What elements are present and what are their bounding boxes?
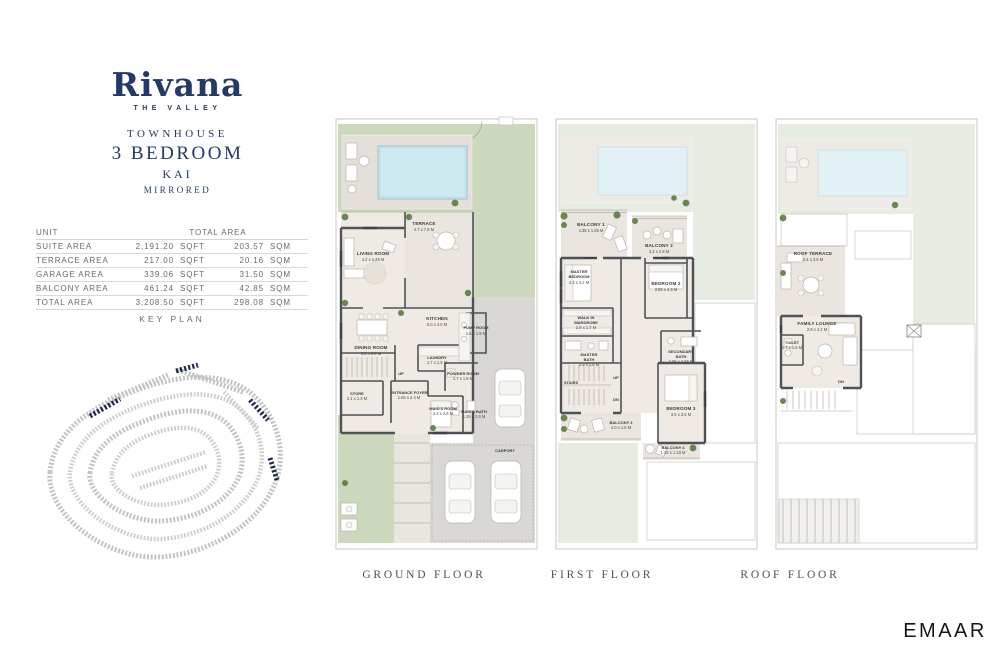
svg-text:4.2 x 4.25 M: 4.2 x 4.25 M <box>362 257 385 262</box>
svg-text:2.9 x 1.9 M: 2.9 x 1.9 M <box>579 362 600 367</box>
svg-text:UP: UP <box>613 375 619 380</box>
svg-text:4.0 x 1.5 M: 4.0 x 1.5 M <box>611 425 632 430</box>
svg-text:1.29 x 1.18 M: 1.29 x 1.18 M <box>661 450 686 455</box>
roof-void <box>855 231 911 259</box>
dining-table <box>357 320 387 335</box>
svg-text:2.2 x 2.6 M: 2.2 x 2.6 M <box>433 411 454 416</box>
unit-variant: MIRRORED <box>55 185 300 195</box>
caption-roof-floor: ROOF FLOOR <box>740 569 839 581</box>
unit-model: KAI <box>55 167 300 182</box>
garden-below <box>558 443 638 543</box>
toilet-icon <box>785 350 791 356</box>
pool-water <box>381 149 464 196</box>
sofa <box>781 263 791 289</box>
carport-roof <box>647 462 755 540</box>
svg-text:4.7 x 7.8 M: 4.7 x 7.8 M <box>414 227 435 232</box>
ground-floor-plan: CARPORT <box>333 113 540 555</box>
svg-text:4.4 x 3.9 M: 4.4 x 3.9 M <box>803 257 824 262</box>
svg-text:LIVING ROOM: LIVING ROOM <box>357 251 390 256</box>
svg-text:3.5 x 3.6 M: 3.5 x 3.6 M <box>671 412 692 417</box>
roof-below <box>781 214 847 246</box>
site-street-loops <box>50 370 281 557</box>
svg-text:1.7 x 1.9 M: 1.7 x 1.9 M <box>453 376 474 381</box>
first-floor-plan: BALCONY 1 4.35 x 1.85 M BALCONY 2 3.2 x … <box>553 113 760 555</box>
terrace-table <box>803 277 819 293</box>
svg-text:1.5 x 1.9 M: 1.5 x 1.9 M <box>466 331 487 336</box>
svg-text:FAMILY LOUNGE: FAMILY LOUNGE <box>797 321 836 326</box>
lounge-chair <box>346 143 357 159</box>
svg-text:4.35 x 1.85 M: 4.35 x 1.85 M <box>579 228 604 233</box>
roof-of-garden <box>693 212 755 300</box>
balcony-chair <box>646 445 655 454</box>
svg-text:1.7 x 1.6 M: 1.7 x 1.6 M <box>782 345 803 350</box>
pool-below <box>818 150 907 196</box>
rivana-logo-subtitle: THE VALLEY <box>55 105 300 112</box>
sofa <box>843 337 857 365</box>
pergola-slats <box>779 499 859 543</box>
svg-text:5.0 x 3.0 M: 5.0 x 3.0 M <box>427 322 448 327</box>
emaar-logo: EMAAR <box>903 620 987 643</box>
lounge-chair <box>786 147 797 162</box>
svg-text:STAIRS: STAIRS <box>564 380 579 385</box>
svg-text:KITCHEN: KITCHEN <box>426 316 448 321</box>
roof-below <box>913 324 975 434</box>
side-table <box>359 156 369 166</box>
rug <box>364 262 386 284</box>
rivana-logo: Rivana <box>55 68 300 102</box>
unit-type: TOWNHOUSE <box>55 128 300 140</box>
car-icon <box>445 461 475 523</box>
brand-block: Rivana THE VALLEY <box>55 68 300 112</box>
car-icon <box>495 369 525 427</box>
car-icon <box>491 461 521 523</box>
coffee-table <box>818 344 832 358</box>
svg-text:PUMP ROOM: PUMP ROOM <box>463 325 489 330</box>
toilet-icon <box>588 343 594 349</box>
svg-text:1.25 x 2.6 M: 1.25 x 2.6 M <box>463 414 486 419</box>
terrace-table <box>437 232 455 250</box>
svg-text:BALCONY 1: BALCONY 1 <box>577 222 605 227</box>
lounge-chair <box>346 165 357 181</box>
room-label: CARPORT <box>495 448 515 453</box>
svg-text:ROOF TERRACE: ROOF TERRACE <box>794 251 833 256</box>
svg-text:1.65 x 2.4 M: 1.65 x 2.4 M <box>398 395 421 400</box>
svg-text:2.9 x 4.2 M: 2.9 x 4.2 M <box>807 327 828 332</box>
key-plan-title: KEY PLAN <box>36 314 308 324</box>
svg-text:2.05 x 2.85 M: 2.05 x 2.85 M <box>669 359 694 364</box>
area-table: UNIT TOTAL AREA SUITE AREA 2,191.20 SQFT… <box>36 226 308 310</box>
svg-text:2.9 x 1.7 M: 2.9 x 1.7 M <box>576 325 597 330</box>
table-row: BALCONY AREA 461.24 SQFT 42.85 SQM <box>36 282 308 296</box>
svg-text:TERRACE: TERRACE <box>412 221 435 226</box>
table-row: TERRACE AREA 217.00 SQFT 20.16 SQM <box>36 254 308 268</box>
meter-box <box>499 117 513 125</box>
sofa <box>344 269 364 278</box>
svg-text:BEDROOM 2: BEDROOM 2 <box>651 281 680 286</box>
table-row: SUITE AREA 2,191.20 SQFT 203.57 SQM <box>36 240 308 254</box>
svg-text:BEDROOM: BEDROOM <box>569 274 591 279</box>
bathtub-icon <box>565 341 581 350</box>
caption-ground-floor: GROUND FLOOR <box>362 569 485 581</box>
svg-text:3.3 x 2.8 M: 3.3 x 2.8 M <box>361 351 382 356</box>
svg-text:UP: UP <box>398 371 404 376</box>
col-total-area: TOTAL AREA <box>128 228 308 237</box>
unit-title: TOWNHOUSE 3 BEDROOM KAI MIRRORED <box>55 128 300 195</box>
bathtub-icon <box>681 337 697 346</box>
lounge-chair <box>786 167 797 182</box>
svg-text:3.55 x 4.5 M: 3.55 x 4.5 M <box>655 287 678 292</box>
svg-text:DN: DN <box>838 379 844 384</box>
svg-text:DINING ROOM: DINING ROOM <box>354 345 387 350</box>
svg-text:3.2 x 2.8 M: 3.2 x 2.8 M <box>649 249 670 254</box>
unit-bedrooms: 3 BEDROOM <box>55 143 300 165</box>
area-table-header: UNIT TOTAL AREA <box>36 226 308 240</box>
svg-text:1.7 x 1.9 M: 1.7 x 1.9 M <box>427 360 448 365</box>
roof-floor-plan: ROOF TERRACE 4.4 x 3.9 M FAMILY LOUNGE 2… <box>773 113 980 555</box>
svg-text:DN: DN <box>613 397 619 402</box>
brochure-page: Rivana THE VALLEY TOWNHOUSE 3 BEDROOM KA… <box>0 0 1000 667</box>
svg-text:4.2 x 3.2 M: 4.2 x 3.2 M <box>569 280 590 285</box>
svg-text:BEDROOM 3: BEDROOM 3 <box>666 406 695 411</box>
toilet-icon <box>668 338 674 344</box>
svg-text:BALCONY 2: BALCONY 2 <box>645 243 673 248</box>
key-plan-map <box>28 340 313 578</box>
sink-icon <box>599 341 608 350</box>
table-row: TOTAL AREA 3,208.50 SQFT 298.08 SQM <box>36 296 308 310</box>
garden-below <box>913 214 975 324</box>
garden <box>473 212 535 297</box>
sofa <box>344 238 354 266</box>
side-table <box>348 185 356 193</box>
skylight <box>907 325 921 337</box>
table-row: GARAGE AREA 339.06 SQFT 31.50 SQM <box>36 268 308 282</box>
caption-first-floor: FIRST FLOOR <box>551 569 653 581</box>
svg-text:2.1 x 1.3 M: 2.1 x 1.3 M <box>347 396 368 401</box>
pool-below <box>598 147 687 195</box>
col-unit: UNIT <box>36 228 128 237</box>
